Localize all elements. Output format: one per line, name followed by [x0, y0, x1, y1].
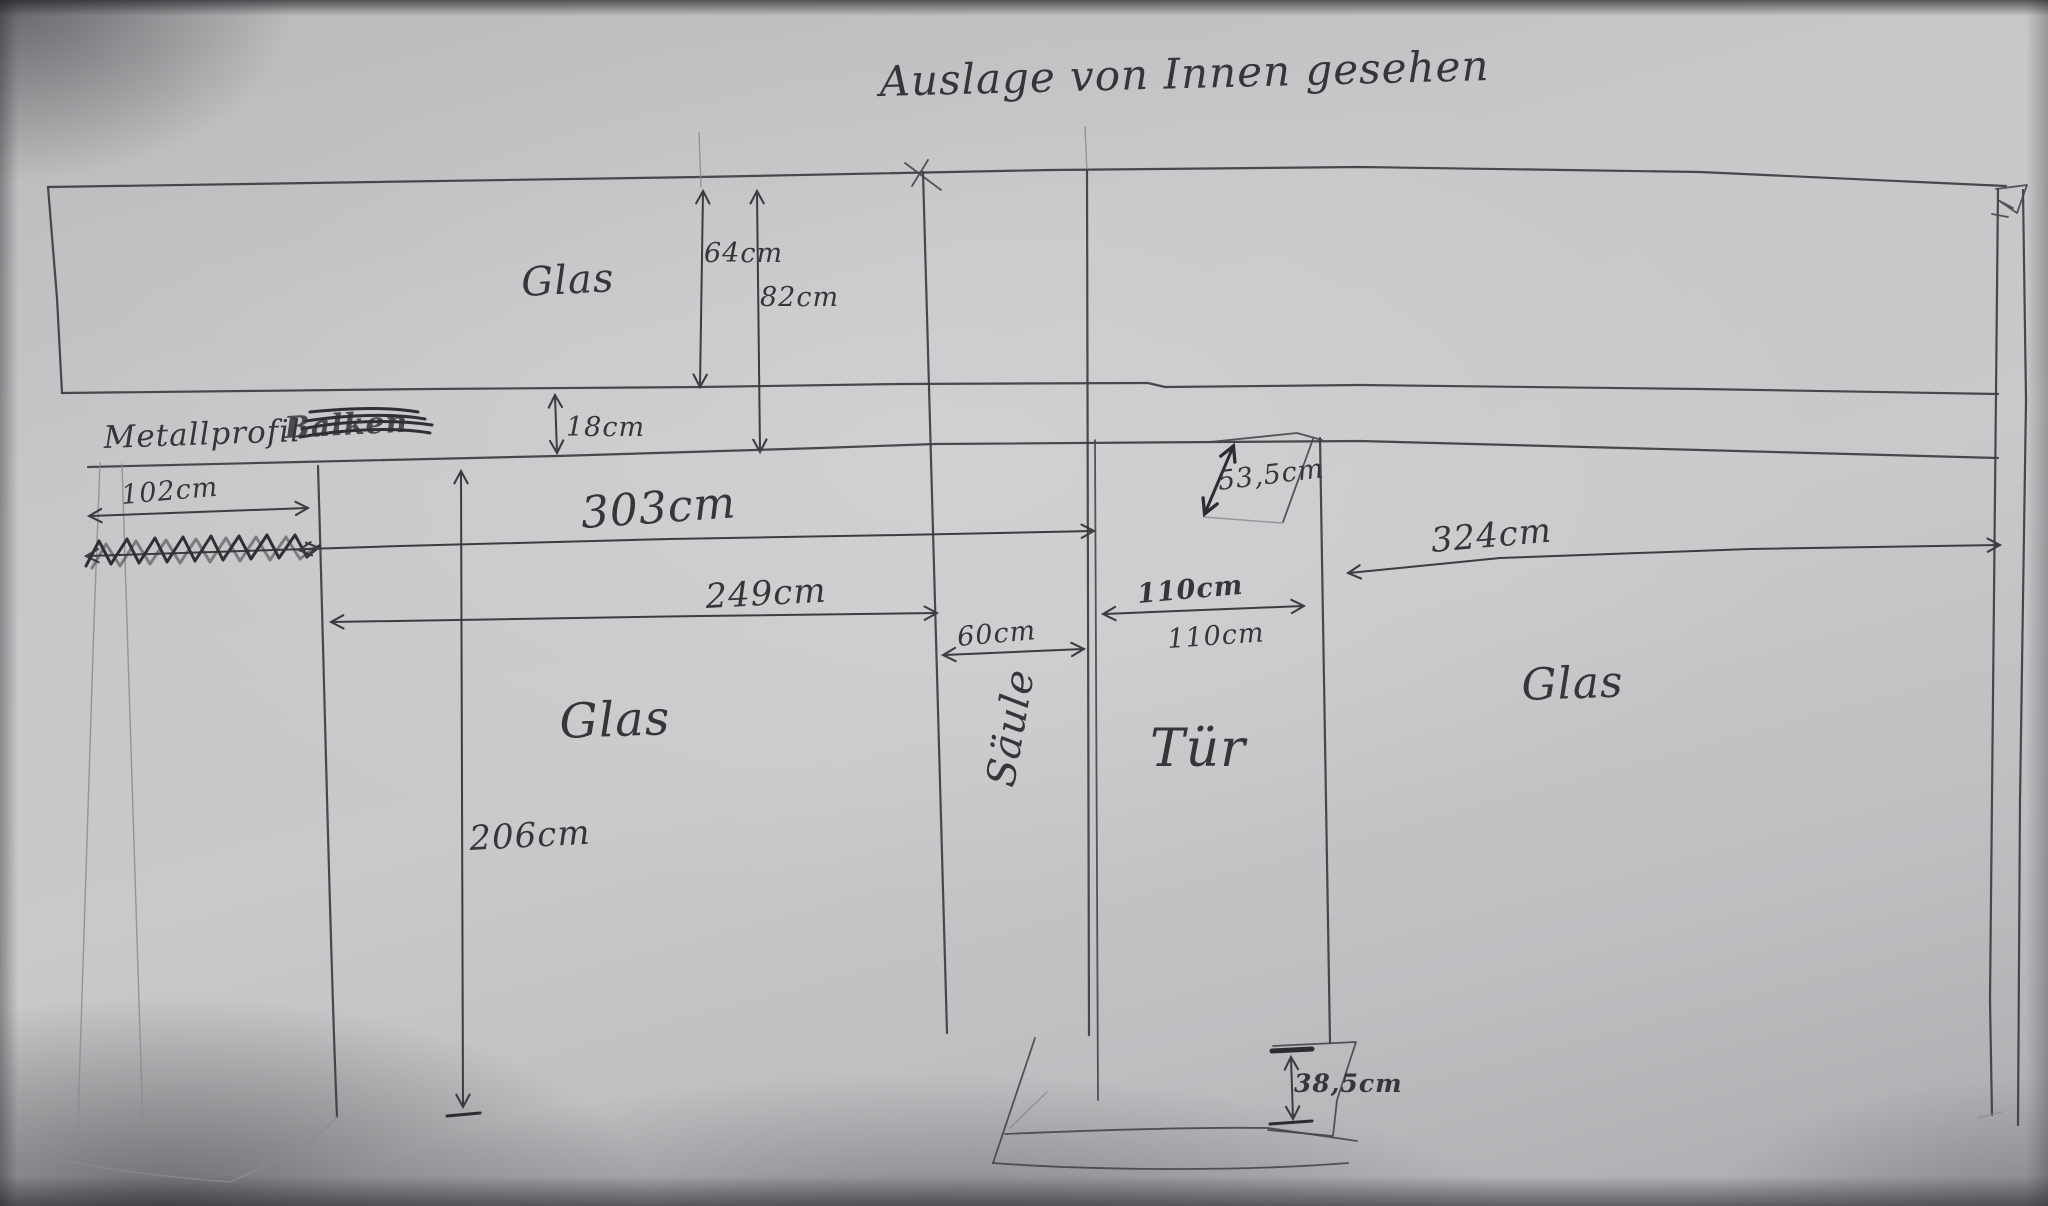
dim-38-5-label: 38,5cm [1294, 1069, 1403, 1098]
dim-206cm: 206cm [447, 472, 591, 1116]
threshold-line [1005, 1128, 1357, 1141]
dim-206-label: 206cm [467, 813, 591, 859]
dim-110cm: 110cm 110cm [1104, 570, 1303, 655]
sketch-svg: 64cm 82cm 18cm 102cm 303cm 249cm 60cm 11… [0, 0, 2048, 1206]
left-wall-lines [62, 463, 337, 1182]
right-foot-mark [1978, 1112, 2002, 1118]
construction-tick-right [1085, 127, 1087, 172]
saeule-label: Säule [978, 665, 1044, 790]
dim-303-label: 303cm [579, 477, 738, 539]
sketch-title: Auslage von Innen gesehen [875, 41, 1490, 106]
top-frame [48, 127, 2006, 393]
dim-206-bottom-serif [447, 1113, 480, 1116]
dim-249-line [332, 613, 936, 622]
frame-top-line [48, 167, 2006, 187]
dim-38-5-top-serif [1272, 1049, 1312, 1051]
door-swing-diagonal [993, 1038, 1035, 1163]
door-left-line [1095, 440, 1098, 1100]
brace-connector [1204, 517, 1282, 523]
dim-18cm: 18cm [555, 396, 645, 452]
handwritten-labels: Auslage von Innen gesehen Glas Metallpro… [102, 41, 1624, 790]
dim-82cm: 82cm [757, 192, 839, 451]
dim-249cm: 249cm [332, 571, 936, 622]
band-top-line [62, 383, 1998, 394]
dim-64-label: 64cm [704, 238, 783, 269]
left-mullion-line [318, 466, 337, 1117]
dim-303cm: 303cm [86, 477, 1093, 568]
column-right-line [1087, 170, 1089, 1035]
tuer-label: Tür [1150, 719, 1248, 779]
right-outer-line [2018, 190, 2026, 1125]
construction-tick-left [699, 133, 701, 187]
dim-18-label: 18cm [566, 412, 645, 443]
dim-82-label: 82cm [760, 282, 839, 313]
dim-60cm: 60cm [944, 615, 1083, 655]
paper-photo: 64cm 82cm 18cm 102cm 303cm 249cm 60cm 11… [0, 0, 2048, 1206]
column-left-line [923, 172, 947, 1033]
band-bottom-line [88, 441, 1998, 467]
left-wall-outer [77, 463, 100, 1152]
door-frame [993, 433, 1357, 1169]
dim-64-line [700, 192, 703, 386]
dim-18-line [555, 396, 557, 452]
crossed-out-word: Balken [283, 405, 410, 446]
right-inner-line [1990, 190, 1998, 1115]
door-right-line [1320, 438, 1330, 1043]
dim-110-line [1104, 606, 1303, 614]
glas-right-label: Glas [1521, 656, 1625, 711]
floor-bottom-line [993, 1163, 1348, 1169]
dim-324cm: 324cm [1349, 511, 1999, 573]
column-saeule-lines [905, 160, 1089, 1035]
right-edge-lines [1978, 185, 2027, 1125]
dim-206-line [461, 472, 463, 1106]
dim-53-5-label: 53,5cm [1216, 453, 1326, 497]
dim-324-label: 324cm [1429, 511, 1553, 561]
dim-53-5cm: 53,5cm [1205, 447, 1326, 513]
glas-left-label: Glas [558, 690, 671, 750]
dim-82-line [757, 192, 760, 451]
dim-110-top-label: 110cm [1136, 570, 1245, 610]
dim-38-5-bottom-serif [1270, 1121, 1312, 1124]
frame-left-edge [48, 187, 62, 393]
dim-60-label: 60cm [956, 615, 1037, 653]
dim-38-5-line [1291, 1058, 1293, 1118]
metallprofil-label: Metallprofil [102, 413, 302, 456]
dim-110-bottom-label: 110cm [1166, 617, 1265, 655]
floor-curve-left [62, 1117, 337, 1182]
glas-top-label: Glas [520, 255, 615, 306]
dim-102-label: 102cm [120, 472, 220, 511]
dim-249-label: 249cm [703, 571, 827, 617]
